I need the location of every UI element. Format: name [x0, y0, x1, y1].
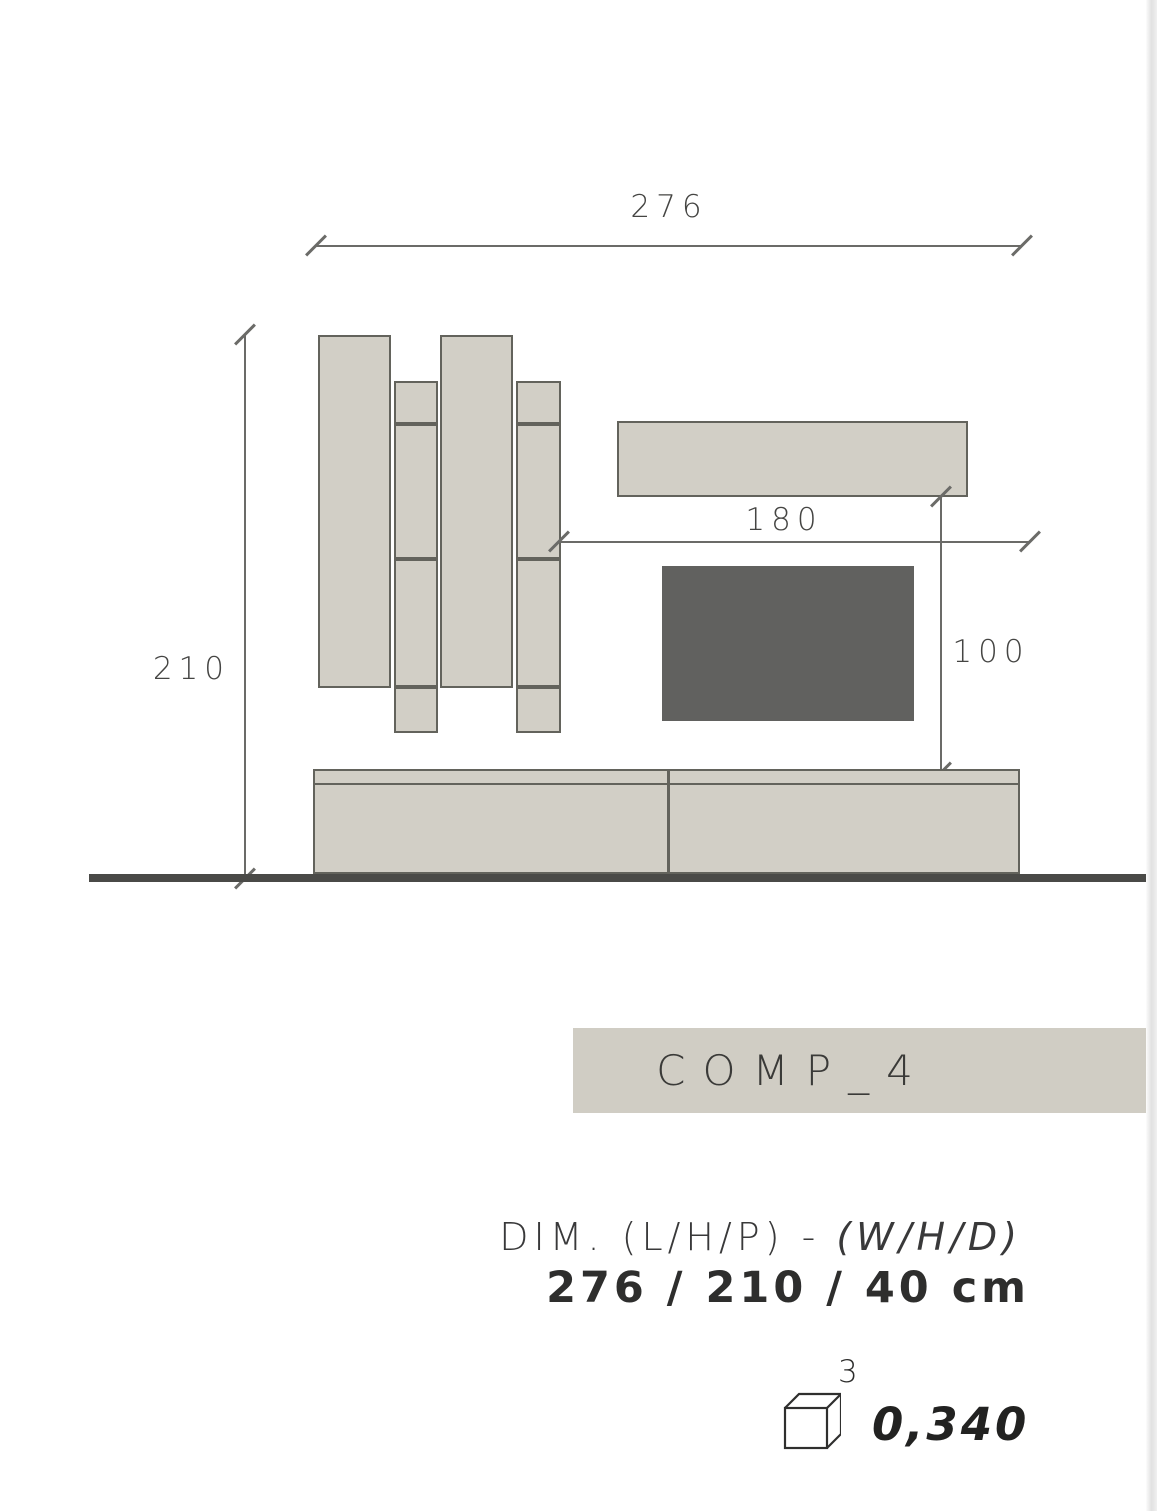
dim-height-line — [244, 335, 246, 879]
dim-tv-gap-line — [940, 495, 942, 775]
cube-icon — [783, 1390, 841, 1452]
shelf-divider — [518, 422, 559, 426]
shelf-divider — [396, 557, 436, 561]
dimensions-caption-main: DIM. (L/H/P) - — [499, 1215, 820, 1259]
floating-shelf-cabinet — [617, 421, 968, 497]
floor-line — [89, 874, 1154, 882]
page-edge — [1146, 0, 1157, 1511]
shelf-divider — [518, 557, 559, 561]
shelf-column-right — [516, 381, 561, 733]
spec-sheet: 276 210 180 100 COMP_4 DIM. (L — [0, 0, 1157, 1511]
base-cabinet-divider — [667, 771, 670, 872]
shelf-divider — [396, 685, 436, 689]
tv-panel — [662, 566, 914, 721]
dim-height-label: 210 — [104, 652, 230, 686]
dim-shelf-width-label: 180 — [684, 503, 884, 537]
dim-tv-gap-label: 100 — [941, 635, 1041, 669]
wall-panel-right — [440, 335, 513, 688]
volume-value: 0,340 — [872, 1398, 1029, 1451]
dim-width-label: 276 — [519, 190, 819, 224]
shelf-divider — [396, 422, 436, 426]
base-cabinet — [313, 769, 1020, 874]
wall-panel-left — [318, 335, 391, 688]
dim-width-line — [316, 245, 1022, 247]
composition-title: COMP_4 — [597, 1028, 989, 1113]
shelf-divider — [518, 685, 559, 689]
dimensions-values: 276 / 210 / 40 cm — [280, 1262, 1030, 1314]
dimensions-caption: DIM. (L/H/P) -(W/H/D) — [280, 1212, 1022, 1262]
dimensions-caption-alt: (W/H/D) — [836, 1215, 1022, 1259]
volume-exponent: 3 — [838, 1354, 858, 1390]
shelf-column-left — [394, 381, 438, 733]
dim-shelf-width-line — [559, 541, 1030, 543]
